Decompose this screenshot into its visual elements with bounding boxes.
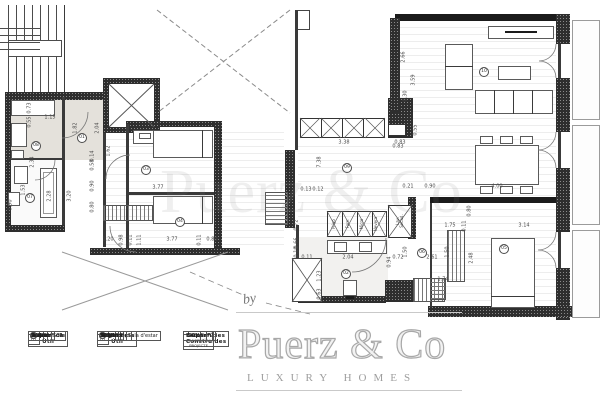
dimension-label: 3.20 [68,190,73,201]
dimension-label: 1.50 [404,246,409,257]
dimension-label: 0.80 [91,201,96,212]
logo-rule-top [236,312,462,313]
dimension-label: 1.23 [318,270,323,281]
by-script: by [242,291,257,309]
brand-tagline: LUXURY HOMES [247,372,417,384]
room-marker: 01 [77,133,87,143]
dimension-label: 0.11 [463,220,468,231]
dimension-label: 0.11 [129,234,134,245]
dimension-label: 2.61 [426,256,437,261]
dimension-label: 0.98 [120,234,125,245]
room-area: 2.25m² [28,331,52,341]
room-area: 101.38m² [97,331,127,341]
dimension-label: 3.38 [338,141,349,146]
dimension-label: 0.73 [28,102,33,113]
dimension-label: 0.11 [301,256,312,261]
dimension-label: 2.48 [470,252,475,263]
dimension-label: 0.55 [28,116,33,127]
dimension-label: 3.77 [166,238,177,243]
dimension-label: 0.80 [468,205,473,216]
room-area: 7.40m² [183,331,207,341]
dimension-label: 1.50 [446,246,451,257]
dimension-label: 1.20 [102,238,113,243]
dimension-label: 2.04 [96,122,101,133]
dimension-label: 0.90 [91,180,96,191]
dimension-label: 2.66 [402,51,407,62]
logo-rule-bottom [236,390,462,391]
dimension-label: 2.28 [48,190,53,201]
room-marker: 02 [341,269,351,279]
dimension-label: 1.82 [74,122,79,133]
dimension-label: 1.11 [138,234,143,245]
dimension-label: 3.59 [412,74,417,85]
dimension-label: 1.74 [437,278,448,283]
center-watermark: Puerz & Co [160,148,460,238]
dimension-label: 2.04 [342,256,353,261]
dimension-label: 0.90 [9,199,14,210]
dimension-label: 3.14 [518,224,529,229]
room-marker: 03 [141,165,151,175]
dimension-label: 2.34 [31,156,36,167]
room-marker: 08 [31,141,41,151]
dimension-label: 4.00 [491,185,502,190]
room-marker: 07 [25,193,35,203]
dimension-label: 1.62 [107,145,112,156]
dimension-label: 0.58 [91,159,96,170]
room-marker: 06 [417,248,427,258]
dimension-label: 0.10 [295,246,300,257]
brand-logo: Puerz & Co [238,322,446,368]
dimension-label: 1.15 [44,116,55,121]
room-marker: 10 [479,67,489,77]
dimension-label: 0.30 [404,90,409,101]
dimension-label: 0.80 [206,238,217,243]
floor-plan-sheet: 0.730.552.341.151.532.280.901.822.041.62… [0,0,600,403]
room-marker: 05 [499,244,509,254]
dimension-label: 0.55 [414,124,419,135]
dimension-label: 0.63 [318,288,323,299]
